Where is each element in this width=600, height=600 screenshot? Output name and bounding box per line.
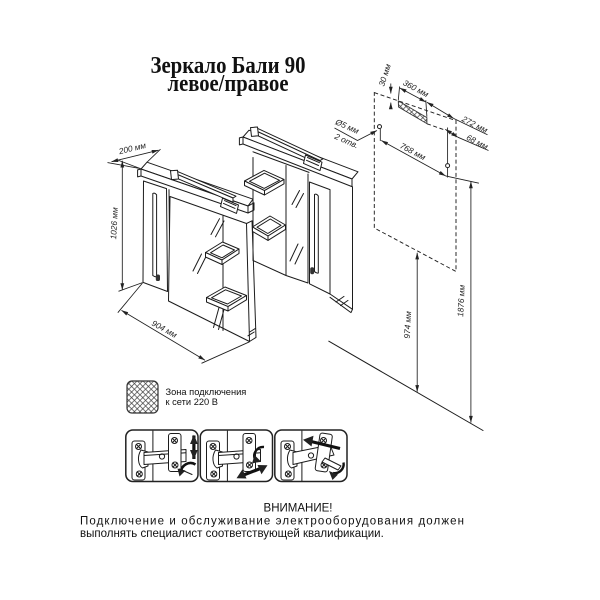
svg-text:904 мм: 904 мм: [150, 318, 179, 340]
svg-text:Зона подключения: Зона подключения: [166, 387, 247, 397]
svg-text:1876 мм: 1876 мм: [455, 284, 467, 317]
svg-text:768 мм: 768 мм: [398, 140, 427, 162]
svg-text:Подключение и обслуживание эле: Подключение и обслуживание электрооборуд…: [80, 516, 464, 528]
svg-text:272 мм: 272 мм: [459, 113, 489, 135]
svg-text:974 мм: 974 мм: [402, 311, 413, 339]
svg-text:68 мм: 68 мм: [465, 132, 490, 151]
svg-text:1026 мм: 1026 мм: [108, 207, 120, 240]
svg-text:выполнять специалист соответст: выполнять специалист соответствующей ква…: [80, 528, 384, 540]
svg-text:360 мм: 360 мм: [401, 77, 430, 99]
svg-text:ВНИМАНИЕ!: ВНИМАНИЕ!: [264, 503, 333, 515]
svg-text:к сети 220 В: к сети 220 В: [166, 397, 219, 407]
svg-text:левое/правое: левое/правое: [168, 71, 289, 97]
